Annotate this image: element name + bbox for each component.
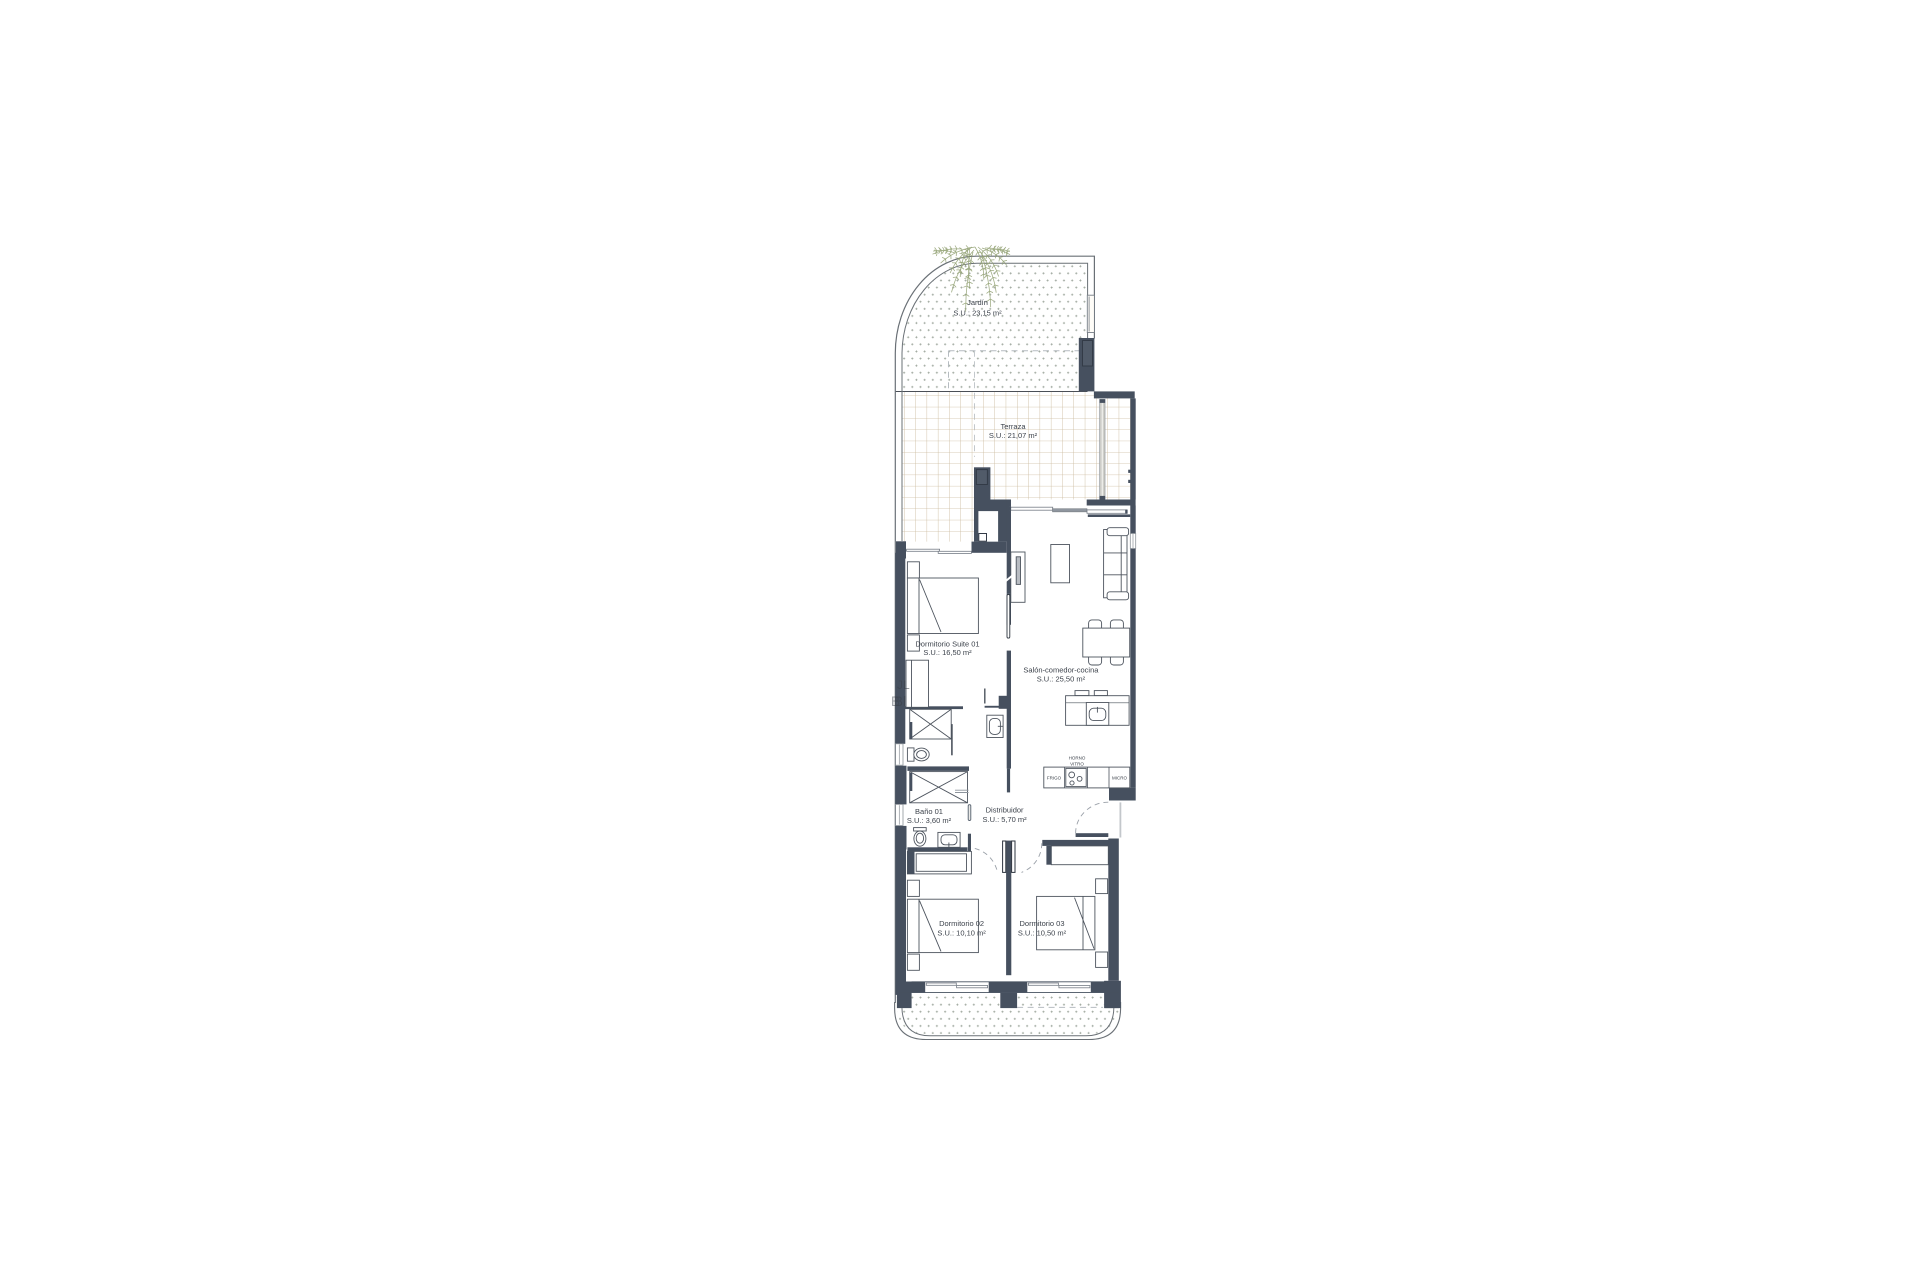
svg-text:S.U.: 10,10 m²: S.U.: 10,10 m² [937, 928, 986, 937]
svg-text:JL: JL [897, 678, 910, 692]
svg-text:Dormitorio 02: Dormitorio 02 [939, 919, 984, 928]
svg-text:Terraza: Terraza [1000, 422, 1026, 431]
svg-text:HORNO: HORNO [1069, 755, 1086, 760]
svg-text:Distribuidor: Distribuidor [986, 805, 1024, 814]
svg-text:S.U.: 5,70 m²: S.U.: 5,70 m² [983, 815, 1028, 824]
svg-text:Salón-comedor-cocina: Salón-comedor-cocina [1023, 666, 1099, 675]
svg-text:S.U.: 21,07 m²: S.U.: 21,07 m² [989, 431, 1038, 440]
svg-text:MICRO: MICRO [1112, 776, 1127, 781]
svg-text:S.U.: 23,15 m²: S.U.: 23,15 m² [953, 308, 1002, 317]
svg-text:S.U.: 25,50 m²: S.U.: 25,50 m² [1037, 674, 1086, 683]
svg-text:FRIGO: FRIGO [1047, 776, 1062, 781]
svg-text:S.U.: 10,50 m²: S.U.: 10,50 m² [1018, 928, 1067, 937]
svg-text:S.U.: 3,60 m²: S.U.: 3,60 m² [907, 816, 952, 825]
svg-text:B: B [891, 694, 900, 709]
svg-text:Jardín: Jardín [967, 298, 988, 307]
svg-text:Dormitorio 03: Dormitorio 03 [1019, 919, 1064, 928]
svg-text:VITRO: VITRO [1070, 762, 1084, 767]
svg-text:Baño 01: Baño 01 [915, 807, 943, 816]
svg-text:S.U.: 16,50 m²: S.U.: 16,50 m² [923, 648, 972, 657]
